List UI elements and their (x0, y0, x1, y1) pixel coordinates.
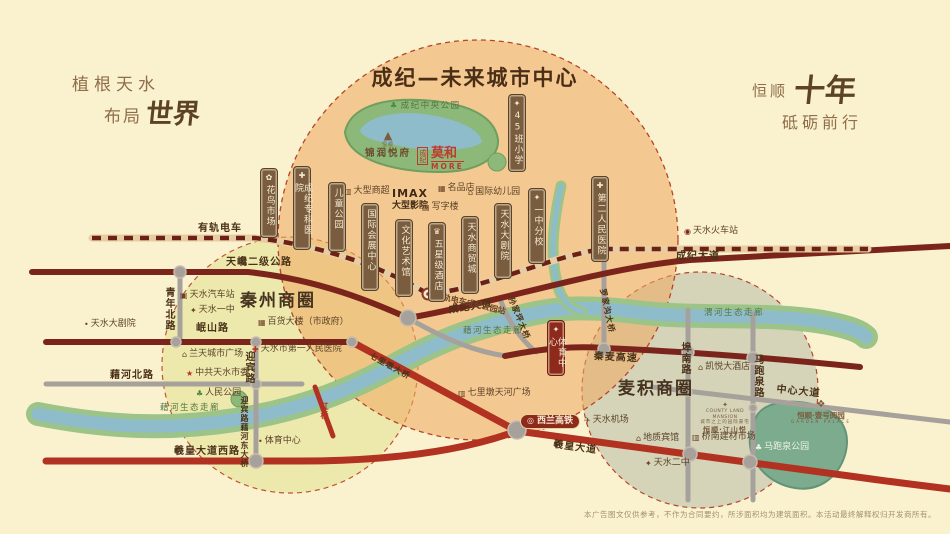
dot-icon: • (258, 438, 263, 446)
bridge-hongqiao: 红桥 (320, 402, 328, 420)
disclaimer: 本广告图文仅供参考，不作为合同要约，所涉面积均为建筑面积。本活动最终解释权归开发… (584, 509, 936, 520)
building-icon: ⌂ (698, 364, 703, 372)
bridge-luojiagou: 罗家沟大桥 (598, 288, 615, 334)
school-icon: ✦ (190, 307, 197, 315)
map-plaque: ✿花鸟市场 (260, 168, 278, 238)
slogan-left-calligraphy: 世界 (145, 103, 202, 127)
shop-icon: ▦ (258, 319, 266, 327)
plaque-label: 五星级酒店 (433, 239, 442, 292)
hospital-icon: ✚ (597, 182, 604, 190)
logo-moka-latin: MORE (431, 161, 464, 171)
map-plaque: ✦45班小学 (508, 94, 526, 172)
rail-icon: ◎ (527, 417, 534, 425)
school-icon: ✦ (514, 100, 521, 108)
slogan-left: 植根天水 布局 世界 (72, 70, 200, 127)
logo-yueyuan: ❖ 恒顺·壹号阅园 GARDEN PALACE (788, 399, 854, 425)
pagoda-icon: ▲ (356, 129, 420, 142)
map-plaque: ✚成纪专科医院 (293, 166, 311, 250)
crown-icon: ♛ (433, 228, 440, 236)
map-title: 成纪—未来城市中心 (330, 62, 620, 92)
poi-first-peoples-hospital: ✚天水市第一人民医院 (252, 345, 342, 354)
poi-sports-center-west: •体育中心 (258, 437, 301, 446)
poi-peoples-park: ♣人民公园 (196, 389, 241, 398)
school-icon: ✦ (645, 460, 652, 468)
dot-icon: • (84, 321, 89, 329)
hospital-icon: ✚ (299, 172, 306, 180)
road-zhongxin: 中心大道 (776, 385, 821, 400)
plaque-label: 花鸟市场 (265, 185, 274, 227)
map-plaque: ✚第二人民医院 (591, 176, 609, 262)
star-icon: ★ (186, 370, 193, 378)
bridge-qilidun: 七里墩大桥 (368, 352, 411, 381)
plaque-label: 文化艺术馆 (400, 225, 409, 278)
poi-airport: ✈天水机场 (584, 416, 629, 425)
poi-lantian-plaza: ⌂兰天城市广场 (182, 350, 243, 359)
map-plaque: 儿童公园 (328, 182, 346, 252)
qinzhou-circle-label: 秦州商圈 (240, 293, 316, 310)
building-icon: ⌂ (468, 189, 473, 197)
map-plaque: 文化艺术馆 (395, 219, 413, 297)
torch-icon: ✦ (553, 326, 560, 334)
plaque-label: 体育中心 (547, 337, 565, 371)
bus-icon: ▣ (180, 292, 188, 300)
flower-icon: ✿ (266, 174, 273, 182)
imax-line1: IMAX (392, 188, 428, 201)
logo-county-tagline: 城市之上的园际豪宅 (694, 420, 756, 425)
road-qingnian: 青年北路 (163, 287, 173, 331)
logo-jinrun-mansion: ▲ 恒顺 锦润悦府 (356, 129, 420, 160)
slogan-left-line1: 植根天水 (72, 70, 200, 95)
slogan-right-line2: 砥砺前行 (782, 109, 862, 133)
road-xihuang: 羲皇大道 (553, 440, 598, 456)
map-plaque: 天水大剧院 (494, 203, 512, 279)
promo-map: 植根天水 布局 世界 恒顺 十年 砥砺前行 成纪—未来城市中心 ▲ 恒顺 锦润悦… (0, 0, 950, 534)
road-qinmai-expwy: 秦麦高速 (593, 352, 637, 364)
building-icon: ⌂ (636, 435, 641, 443)
plaque-label: 第二人民医院 (596, 193, 605, 256)
poi-intl-kindergarten: ⌂国际幼儿园 (468, 188, 520, 197)
cart-icon: ▥ (692, 434, 700, 442)
plaque-label: 成纪专科医院 (293, 183, 311, 245)
slogan-right: 恒顺 十年 砥砺前行 (752, 78, 862, 133)
poi-tianhe-plaza: ▥七里墩天河广场 (458, 389, 531, 398)
map-plaque: ✦一中分校 (528, 188, 546, 264)
maiji-circle-label: 麦积商圈 (618, 381, 694, 398)
map-plaque: ♛五星级酒店 (428, 222, 446, 302)
road-bunan: 埠南路 (679, 342, 689, 375)
logo-county-latin: COUNTY LAND MANSION (694, 409, 756, 420)
building-icon: ⌂ (182, 351, 187, 359)
hsr-badge-label: 西兰高铁 (537, 416, 573, 427)
map-plaque: ✦体育中心 (547, 320, 565, 376)
slogan-right-prefix: 恒顺 (752, 80, 788, 106)
poi-no1-middle-school: ✦天水一中 (190, 306, 235, 315)
hospital-icon: ✚ (252, 346, 259, 354)
poi-no2-middle-school: ✦天水二中 (645, 459, 690, 468)
logo-moka-name: 莫和 (431, 147, 464, 160)
tree-icon: ♣ (196, 390, 203, 398)
poi-qiaonan-market: ▥桥南建材市场 (692, 433, 756, 442)
road-mapaoquan: 马跑泉路 (752, 354, 762, 398)
road-xihuang-west: 羲皇大道西路 (174, 447, 240, 457)
road-minshan: 岷山路 (196, 324, 229, 334)
school-icon: ✦ (534, 194, 541, 202)
logo-county-mansion: ✦ COUNTY LAND MANSION 城市之上的园际豪宅 恒顺·江山悦 (694, 401, 756, 434)
poi-department-store: ▦百货大楼（市政府） (258, 318, 349, 327)
map-plaque: 国际会展中心 (361, 203, 379, 291)
emblem-icon: ❖ (788, 399, 854, 411)
river-jihe-corridor-1: 藉河生态走廊 (160, 404, 220, 413)
plaque-label: 国际会展中心 (366, 209, 375, 272)
office-icon: ▤ (422, 204, 430, 212)
plaque-label: 儿童公园 (333, 188, 342, 230)
poi-kaiyue-hotel: ⌂凯悦大酒店 (698, 363, 750, 372)
tree-icon: ♣ (755, 444, 762, 452)
park-chengji-central: ♣成纪中央公园 (390, 102, 461, 111)
poi-bus-station: ▣天水汽车站 (180, 291, 235, 300)
map-plaque: 天水商贸城 (461, 216, 479, 294)
shop-icon: ▦ (438, 185, 446, 193)
river-weihe-corridor: 渭河生态走廊 (704, 309, 764, 318)
slogan-right-calligraphy: 十年 (793, 78, 858, 106)
poi-municipal-committee: ★中共天水市委 (186, 369, 249, 378)
plaque-label: 45班小学 (513, 111, 522, 166)
poi-office-tower: ▤写字楼 (422, 203, 459, 212)
river-jihe-corridor-2: 藉河生态走廊 (463, 327, 523, 336)
poi-dizhi-hotel: ⌂地质宾馆 (636, 434, 679, 443)
logo-moka-prefix: 成纪 (417, 147, 428, 165)
labels-layer: 植根天水 布局 世界 恒顺 十年 砥砺前行 成纪—未来城市中心 ▲ 恒顺 锦润悦… (0, 0, 950, 534)
slogan-left-prefix: 布局 (104, 102, 142, 127)
poi-grand-theater: •天水大剧院 (84, 320, 136, 329)
bridge-yingbin-jihe: 迎宾路藉河东大桥 (240, 396, 248, 468)
cart-icon: ▥ (458, 390, 466, 398)
road-chengji-east: 成纪大道 (676, 252, 720, 262)
logo-yueyuan-latin: GARDEN PALACE (788, 420, 854, 425)
poi-supermarket: ▥大型商超 (344, 187, 390, 196)
logo-jinrun-name: 锦润悦府 (356, 148, 420, 159)
plane-icon: ✈ (584, 417, 591, 425)
road-tianchan: 天巉二级公路 (226, 258, 292, 268)
road-jihe-north: 藉河北路 (110, 371, 154, 381)
plaque-label: 天水大剧院 (499, 209, 508, 262)
plaque-label: 天水商贸城 (466, 222, 475, 275)
plaque-label: 一中分校 (533, 205, 542, 247)
hsr-badge: ◎ 西兰高铁 (520, 414, 580, 429)
logo-moka: 成纪 莫和 MORE (417, 147, 464, 171)
poi-mapaoquan-park: ♣马跑泉公园 (755, 443, 809, 452)
train-icon: ◉ (684, 228, 691, 236)
tram-label: 有轨电车 (198, 224, 242, 234)
tree-icon: ♣ (390, 102, 399, 110)
poi-railway-station: ◉天水火车站 (684, 227, 738, 236)
